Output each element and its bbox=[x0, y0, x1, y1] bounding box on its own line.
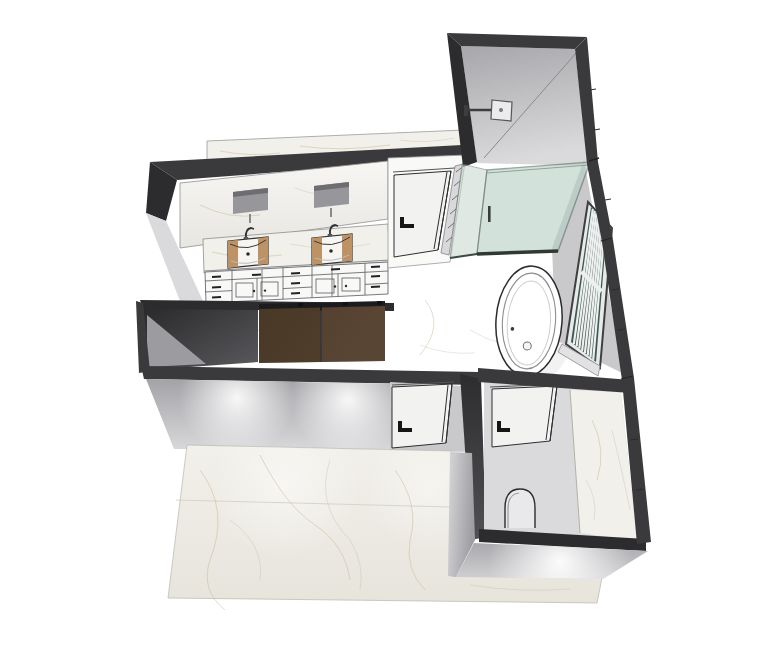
toilet-bowl bbox=[505, 489, 535, 528]
door-leaf bbox=[392, 384, 452, 448]
wardrobe-sheen bbox=[259, 304, 385, 363]
door-leaf bbox=[492, 386, 557, 447]
floor-vein bbox=[420, 345, 475, 353]
toilet bbox=[505, 489, 535, 528]
glass-door-handle bbox=[488, 206, 491, 222]
door-entry bbox=[392, 384, 452, 448]
floor-vein bbox=[420, 300, 434, 355]
downlight-glow bbox=[146, 379, 394, 449]
sink-drain bbox=[329, 249, 333, 253]
door-wc bbox=[492, 386, 557, 447]
vessel-sink bbox=[312, 234, 352, 265]
3d-viewport[interactable] bbox=[0, 0, 770, 650]
wardrobe-panels bbox=[259, 301, 385, 363]
shower-interior bbox=[461, 46, 588, 166]
tub-drain bbox=[523, 342, 532, 351]
vessel-sink bbox=[228, 237, 268, 268]
sink-drain bbox=[246, 252, 250, 256]
shower-room bbox=[447, 33, 588, 167]
